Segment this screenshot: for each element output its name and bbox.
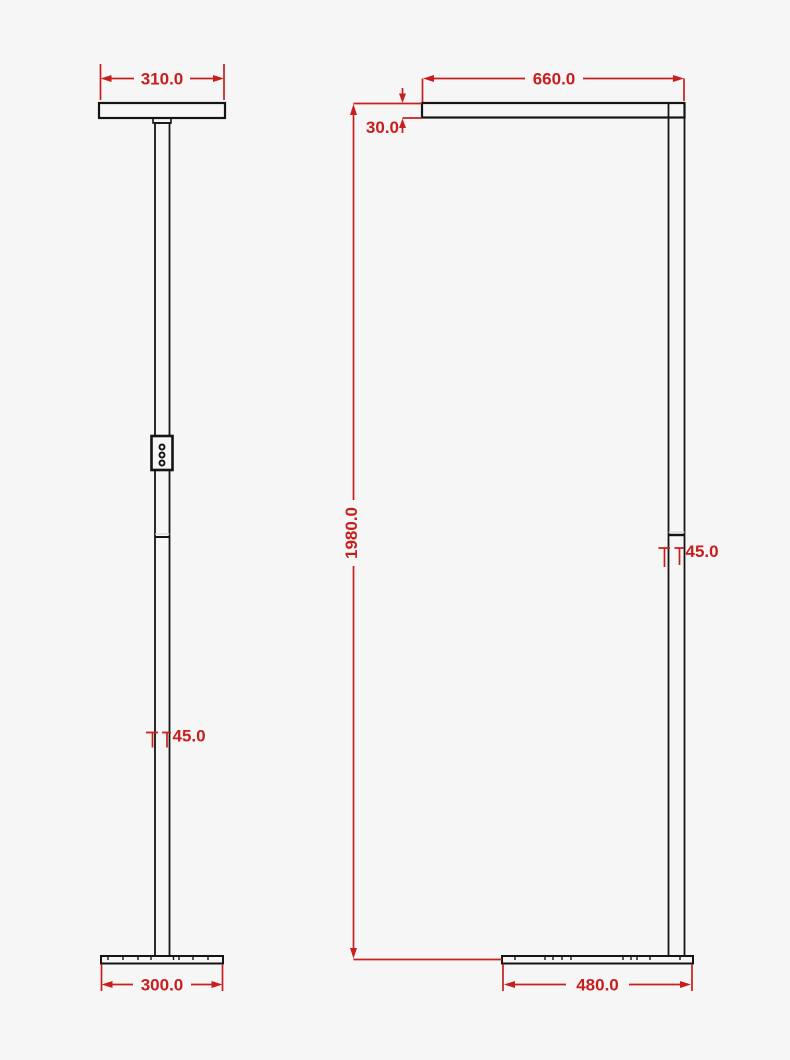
dim-total-height-label: 1980.0 bbox=[342, 507, 361, 559]
arrow-up-icon bbox=[399, 119, 406, 129]
arrow-left-icon bbox=[504, 981, 515, 988]
lamp-head bbox=[99, 103, 225, 118]
dim-base-depth: 300.0 bbox=[102, 964, 223, 995]
dim-base-depth-label: 300.0 bbox=[141, 976, 184, 995]
arrow-right-icon bbox=[680, 981, 691, 988]
lamp-pole bbox=[155, 123, 170, 956]
arrow-right-icon bbox=[673, 75, 684, 82]
dim-bar-length: 660.0 bbox=[423, 70, 685, 103]
arrow-left-icon bbox=[423, 75, 434, 82]
base-plate bbox=[101, 956, 223, 964]
arrow-down-icon bbox=[350, 948, 357, 959]
side-view bbox=[99, 103, 225, 964]
dim-base-width: 480.0 bbox=[503, 964, 692, 995]
base-plate-ticks bbox=[515, 957, 680, 961]
front-view bbox=[422, 103, 693, 964]
dim-bar-length-label: 660.0 bbox=[533, 70, 576, 89]
light-bar bbox=[422, 103, 685, 118]
dim-total-height: 1980.0 bbox=[342, 104, 502, 960]
arrow-right-icon bbox=[213, 75, 224, 82]
dim-pole-width-side-label: 45.0 bbox=[173, 727, 206, 746]
lamp-pole bbox=[669, 103, 685, 956]
dim-pole-width-front: 45.0 bbox=[659, 542, 719, 567]
arrow-left-icon bbox=[101, 75, 112, 82]
tick-marks bbox=[146, 733, 171, 748]
dim-bar-thickness-label: 30.0 bbox=[366, 118, 399, 137]
tick-marks bbox=[659, 548, 685, 567]
arrow-up-icon bbox=[350, 104, 357, 115]
arrow-down-icon bbox=[399, 94, 406, 104]
base-plate bbox=[502, 956, 693, 964]
dim-head-width: 310.0 bbox=[101, 64, 225, 100]
dim-pole-width-front-label: 45.0 bbox=[686, 542, 719, 561]
arrow-right-icon bbox=[212, 981, 223, 988]
dimension-drawing: 310.0 660.0 30.0 1980.0 45.0 45.0 bbox=[0, 0, 790, 1060]
dim-bar-thickness: 30.0 bbox=[354, 88, 423, 137]
arrow-left-icon bbox=[102, 981, 113, 988]
base-plate-ticks bbox=[108, 957, 208, 961]
dim-head-width-label: 310.0 bbox=[141, 70, 184, 89]
dim-base-width-label: 480.0 bbox=[576, 976, 619, 995]
